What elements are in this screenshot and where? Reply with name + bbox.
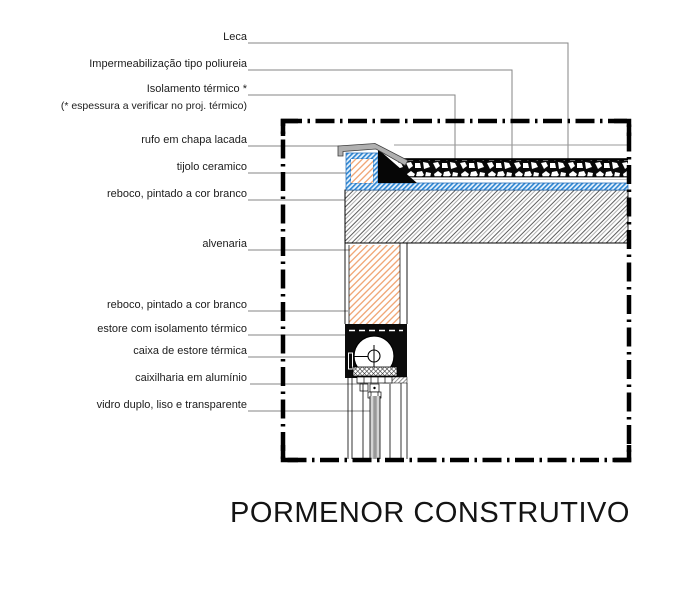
label-aluminium-frame: caixilharia em alumínio bbox=[135, 372, 247, 385]
label-shutter-box: caixa de estore térmica bbox=[133, 345, 247, 358]
label-insulation-note: (* espessura a verificar no proj. térmic… bbox=[61, 100, 247, 113]
masonry-alvenaria bbox=[349, 245, 400, 324]
label-thermal-insulation: Isolamento térmico * bbox=[147, 83, 247, 96]
construction-detail-page: Leca Impermeabilização tipo poliureia Is… bbox=[0, 0, 690, 612]
drawing-title: PORMENOR CONSTRUTIVO bbox=[170, 497, 690, 530]
label-ceramic-brick: tijolo ceramico bbox=[177, 161, 247, 174]
gravel-leca-layer bbox=[398, 159, 628, 177]
label-shutter: estore com isolamento térmico bbox=[97, 323, 247, 336]
label-masonry: alvenaria bbox=[202, 238, 247, 251]
label-render-lower: reboco, pintado a cor branco bbox=[107, 299, 247, 312]
label-render-upper: reboco, pintado a cor branco bbox=[107, 188, 247, 201]
concrete-slab bbox=[345, 190, 628, 243]
label-leca: Leca bbox=[223, 31, 247, 44]
ceramic-brick bbox=[351, 159, 373, 183]
shutter-box bbox=[345, 324, 407, 378]
label-flashing: rufo em chapa lacada bbox=[141, 134, 247, 147]
aluminium-frame bbox=[357, 377, 407, 398]
label-waterproofing: Impermeabilização tipo poliureia bbox=[89, 58, 247, 71]
label-double-glazing: vidro duplo, liso e transparente bbox=[97, 399, 247, 412]
